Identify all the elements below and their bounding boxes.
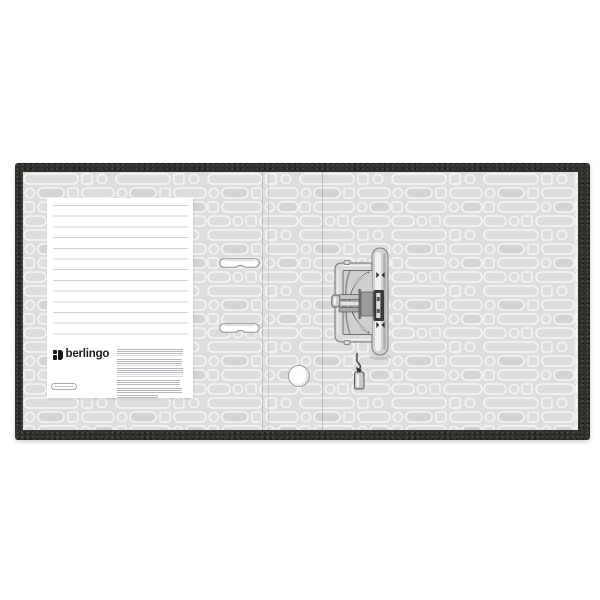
brand-logo: berlingo [53, 348, 109, 361]
cover-edge-highlight [574, 172, 578, 430]
finger-hole [288, 365, 310, 387]
ruled-lines [53, 205, 188, 336]
spine-fold-line-right [322, 172, 323, 430]
paper-clip-top [219, 258, 260, 269]
paper-clip-bottom [219, 323, 260, 334]
product-photo-stage: berlingo [0, 0, 600, 600]
brand-logo-text: berlingo [66, 349, 110, 360]
berlingo-logo-icon [53, 350, 63, 360]
open-binder: berlingo [15, 163, 590, 440]
lever-arch-mechanism [331, 245, 393, 391]
micro-print-block [117, 349, 183, 393]
spine-fold-line-left [262, 172, 263, 430]
label-sheet: berlingo [47, 198, 193, 398]
info-badge-pill [51, 383, 77, 390]
spine-fold-crease [268, 172, 269, 430]
